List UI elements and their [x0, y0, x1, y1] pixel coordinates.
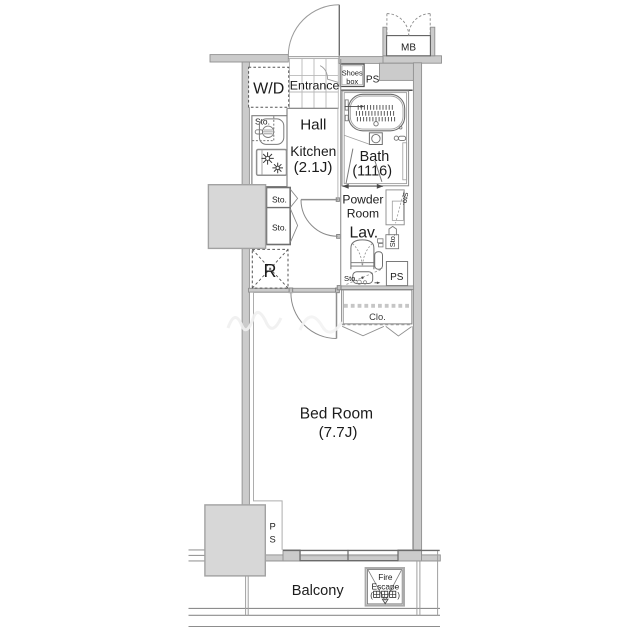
svg-text:Sto.: Sto. [401, 192, 410, 205]
svg-text:(7.7J): (7.7J) [319, 424, 358, 441]
svg-text:Fire: Fire [378, 572, 393, 582]
svg-text:Sto.: Sto. [344, 274, 358, 283]
svg-text:(: ( [370, 591, 373, 600]
svg-text:(2.1J): (2.1J) [294, 159, 333, 176]
svg-text:R: R [264, 261, 277, 281]
svg-text:Sto.: Sto. [272, 222, 287, 232]
svg-text:Powder: Powder [342, 192, 383, 206]
svg-text:Sto.: Sto. [272, 195, 287, 205]
svg-text:Kitchen: Kitchen [290, 144, 336, 159]
svg-text:W/D: W/D [253, 81, 284, 98]
svg-text:Escape: Escape [372, 581, 400, 591]
svg-text:Sto.: Sto. [255, 117, 270, 127]
svg-text:S: S [269, 534, 275, 545]
svg-text:P: P [269, 521, 275, 532]
svg-text:Bed Room: Bed Room [300, 405, 373, 422]
svg-text:(1116): (1116) [352, 163, 392, 179]
svg-text:Entrance: Entrance [290, 78, 340, 92]
svg-text:Balcony: Balcony [292, 583, 345, 599]
svg-text:MB: MB [401, 43, 416, 54]
svg-text:Sto.: Sto. [388, 234, 397, 247]
svg-text:PS: PS [366, 75, 380, 86]
svg-text:PS: PS [390, 272, 404, 283]
svg-text:Room: Room [347, 207, 379, 221]
svg-text:Lav.: Lav. [349, 224, 378, 241]
svg-text:): ) [397, 591, 400, 600]
svg-text:Bath: Bath [360, 149, 390, 165]
svg-text:Clo.: Clo. [369, 311, 386, 322]
svg-text:box: box [346, 77, 358, 86]
svg-text:Hall: Hall [300, 116, 326, 133]
